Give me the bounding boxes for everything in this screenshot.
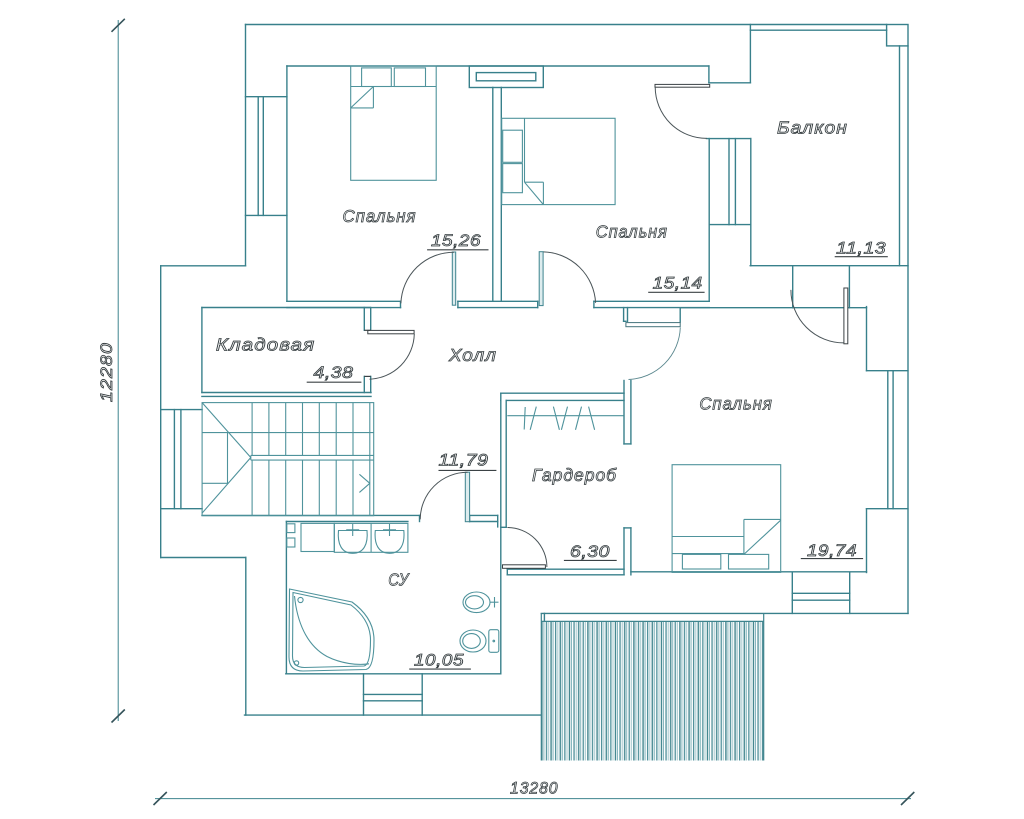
svg-text:Спальня: Спальня xyxy=(596,222,668,242)
svg-text:Холл: Холл xyxy=(448,345,497,365)
svg-text:Кладовая: Кладовая xyxy=(216,335,315,355)
svg-text:Балкон: Балкон xyxy=(777,118,848,138)
svg-text:19,74: 19,74 xyxy=(807,542,857,560)
svg-text:11,13: 11,13 xyxy=(836,240,886,258)
svg-text:12280: 12280 xyxy=(98,342,116,402)
svg-text:15,26: 15,26 xyxy=(431,232,481,250)
svg-text:11,79: 11,79 xyxy=(439,452,489,470)
svg-text:СУ: СУ xyxy=(388,570,410,590)
svg-text:15,14: 15,14 xyxy=(653,275,703,293)
svg-text:Спальня: Спальня xyxy=(343,206,417,226)
svg-text:Спальня: Спальня xyxy=(699,394,772,414)
svg-text:13280: 13280 xyxy=(510,780,559,798)
svg-text:4,38: 4,38 xyxy=(314,364,354,382)
svg-text:6,30: 6,30 xyxy=(570,543,610,561)
svg-text:Гардероб: Гардероб xyxy=(532,465,617,485)
svg-text:10,05: 10,05 xyxy=(414,652,464,670)
